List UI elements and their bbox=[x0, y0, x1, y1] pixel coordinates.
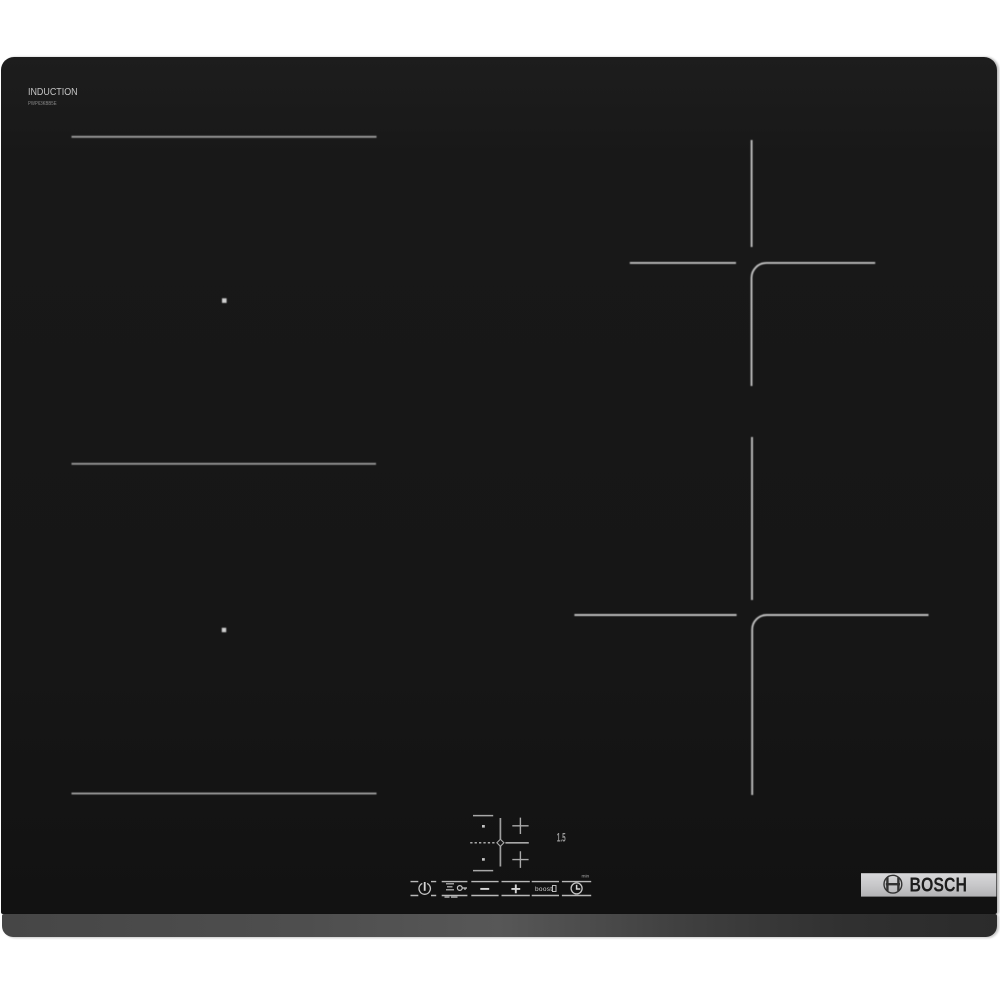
svg-text:1.5: 1.5 bbox=[557, 830, 566, 844]
svg-text:BOSCH: BOSCH bbox=[910, 873, 968, 896]
svg-text:boost: boost bbox=[535, 886, 552, 893]
svg-text:min: min bbox=[582, 874, 590, 880]
